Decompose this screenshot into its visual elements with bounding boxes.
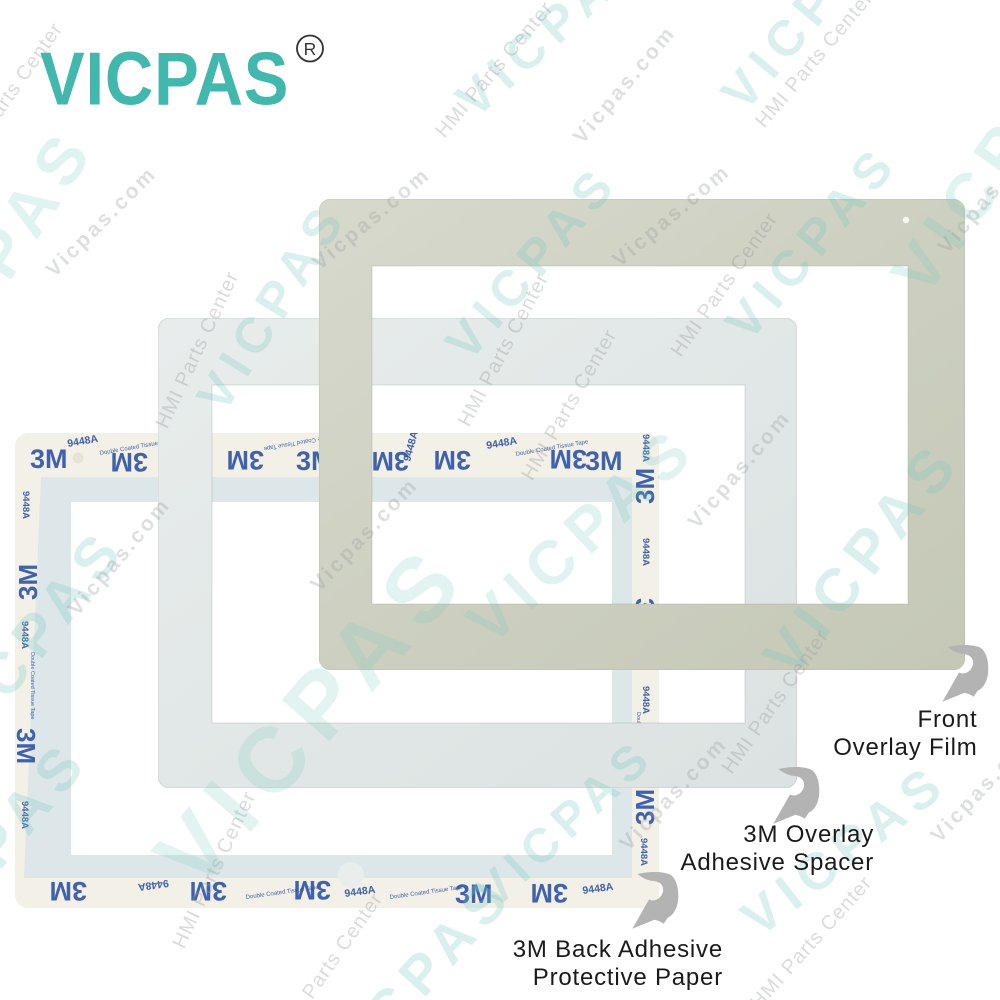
svg-text:9448A: 9448A	[638, 838, 649, 866]
svg-text:9448A: 9448A	[19, 801, 30, 829]
svg-text:3M: 3M	[455, 879, 493, 908]
svg-text:9448A: 9448A	[19, 621, 30, 649]
svg-text:3M: 3M	[15, 564, 43, 600]
svg-text:3M: 3M	[30, 444, 68, 474]
svg-text:3M: 3M	[49, 876, 87, 906]
svg-text:3M: 3M	[530, 878, 568, 908]
svg-text:3M: 3M	[630, 789, 659, 825]
svg-text:3M: 3M	[15, 728, 41, 764]
svg-text:Double Coated Tissue Tape: Double Coated Tissue Tape	[29, 652, 35, 719]
svg-text:9448A: 9448A	[20, 491, 31, 519]
svg-text:R: R	[304, 39, 317, 59]
svg-text:3M: 3M	[189, 876, 227, 906]
